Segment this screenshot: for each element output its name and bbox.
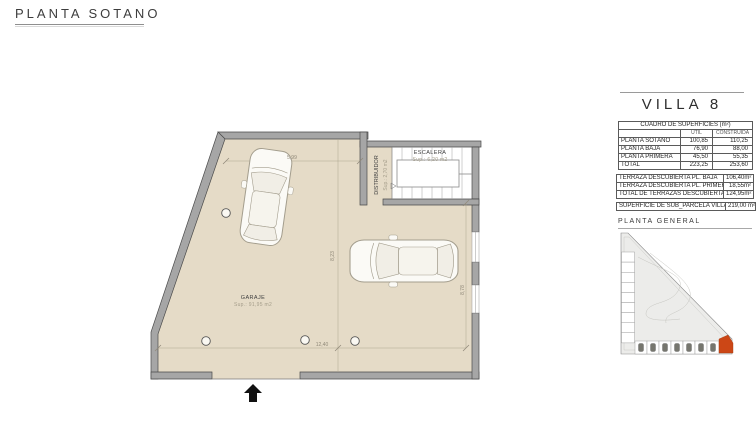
parcel-table: SUPERFICIE DE SUB_PARCELA VILLA 8 219,00… [616, 202, 756, 211]
garaje-area: Sup.: 91,95 m2 [234, 302, 272, 308]
dim-center-vertical: 8,23 [330, 251, 336, 261]
parked-car-right [350, 235, 458, 287]
row-util: 76,90 [681, 146, 713, 154]
row-value: 219,00 m² [726, 203, 756, 211]
table-row: TERRAZA DESCUBIERTA PL. PRIMERA 18,55m² [617, 183, 754, 191]
terraces-table: TERRAZA DESCUBIERTA PL. BAJA 106,40m² TE… [616, 174, 754, 199]
table-row: PLANTA PRIMERA 45,50 55,35 [619, 154, 753, 162]
column [351, 337, 360, 346]
row-label: TERRAZA DESCUBIERTA PL. BAJA [617, 175, 724, 183]
row-util: 223,25 [681, 162, 713, 170]
table-row: SUPERFICIE DE SUB_PARCELA VILLA 8 219,00… [617, 203, 756, 211]
col-header-util: UTIL [681, 130, 713, 138]
surfaces-table-title: CUADRO DE SUPERFICIES (m²) [619, 122, 753, 130]
site-units-left [622, 252, 635, 343]
wall-stair-right [472, 147, 479, 199]
stair-railing [397, 160, 459, 187]
wall-right-c [472, 313, 479, 379]
entrance-arrow-icon [244, 384, 262, 402]
row-construida: 88,00 [713, 146, 753, 154]
site-plan-title: PLANTA GENERAL [618, 218, 752, 229]
info-panel: VILLA 8 CUADRO DE SUPERFICIES (m²) UTIL … [610, 92, 756, 357]
row-construida: 253,60 [713, 162, 753, 170]
garaje-label: GARAJE [241, 295, 265, 301]
villa-title: VILLA 8 [620, 92, 744, 113]
wall-bottom-left [151, 372, 212, 379]
row-label: PLANTA SOTANO [619, 138, 681, 146]
table-row: TERRAZA DESCUBIERTA PL. BAJA 106,40m² [617, 175, 754, 183]
column [301, 336, 310, 345]
table-row: TOTAL DE TERRAZAS DESCUBIERTAS 124,95m² [617, 191, 754, 199]
distribuidor-area: Sup.: 2,70 m2 [383, 159, 389, 190]
row-label: TERRAZA DESCUBIERTA PL. PRIMERA [617, 183, 724, 191]
dim-top: 5,99 [287, 155, 297, 161]
col-header-construida: CONSTRUIDA [713, 130, 753, 138]
wall-right-b [472, 262, 479, 285]
wall-top [218, 132, 368, 139]
table-row-total: TOTAL 223,25 253,60 [619, 162, 753, 170]
row-label: PLANTA PRIMERA [619, 154, 681, 162]
column [222, 209, 231, 218]
escalera-label: ESCALERA [414, 150, 447, 156]
wall-bottom-right [300, 372, 479, 379]
row-util: 100,85 [681, 138, 713, 146]
row-value: 18,55m² [724, 183, 754, 191]
row-label: TOTAL DE TERRAZAS DESCUBIERTAS [617, 191, 724, 199]
surfaces-table: CUADRO DE SUPERFICIES (m²) UTIL CONSTRUI… [618, 121, 753, 170]
wall-stair-top [360, 141, 481, 147]
drawing-sheet: PLANTA SOTANO [0, 0, 756, 443]
dim-right-vertical: 8,78 [460, 285, 466, 295]
row-label: TOTAL [619, 162, 681, 170]
wall-distribuidor [360, 132, 367, 205]
row-value: 124,95m² [724, 191, 754, 199]
column [202, 337, 211, 346]
distribuidor-label: DISTRIBUIDOR [374, 155, 380, 194]
row-construida: 55,35 [713, 154, 753, 162]
corner-cell [619, 130, 681, 138]
dim-bottom: 12,40 [316, 342, 329, 348]
escalera-area: Sup.: 6,20 m2 [412, 157, 447, 163]
row-label: SUPERFICIE DE SUB_PARCELA VILLA 8 [617, 203, 726, 211]
site-plan-drawing [616, 231, 748, 357]
table-row: PLANTA SOTANO 100,85 110,25 [619, 138, 753, 146]
row-label: PLANTA BAJA [619, 146, 681, 154]
row-value: 106,40m² [724, 175, 754, 183]
row-util: 45,50 [681, 154, 713, 162]
table-row: PLANTA BAJA 76,90 88,00 [619, 146, 753, 154]
row-construida: 110,25 [713, 138, 753, 146]
